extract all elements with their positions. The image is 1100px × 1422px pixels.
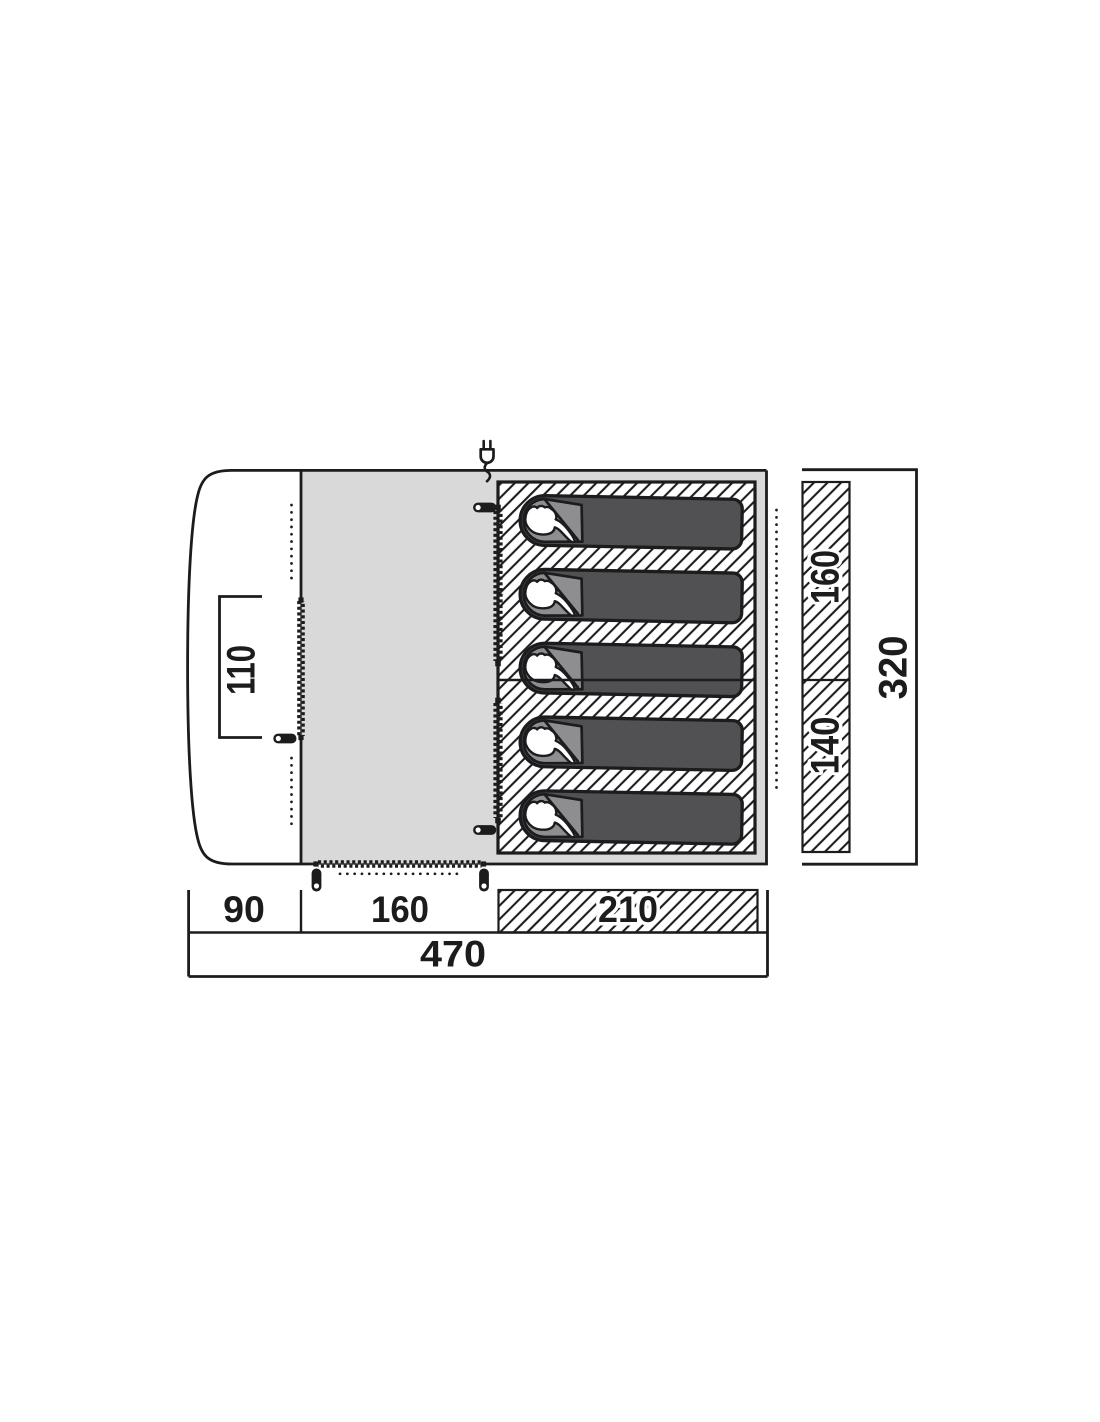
svg-text:320: 320 <box>872 636 916 700</box>
svg-text:140: 140 <box>804 717 848 775</box>
svg-text:90: 90 <box>223 888 265 930</box>
svg-text:110: 110 <box>220 645 264 695</box>
svg-text:210: 210 <box>598 888 658 930</box>
svg-text:160: 160 <box>371 888 429 930</box>
svg-text:470: 470 <box>420 932 486 974</box>
svg-text:160: 160 <box>804 550 848 604</box>
